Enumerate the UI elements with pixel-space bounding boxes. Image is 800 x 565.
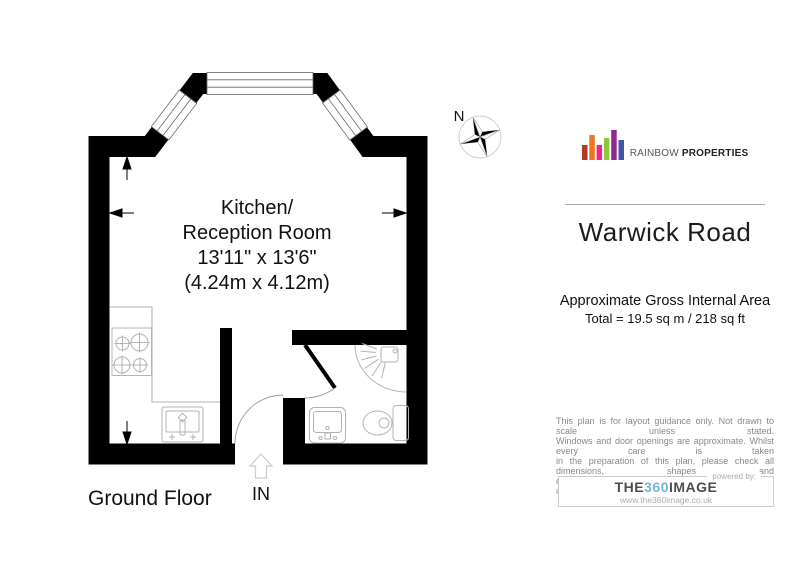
ground-floor-label: Ground Floor <box>88 487 212 510</box>
room-name-line2: Reception Room <box>183 222 332 244</box>
brand-name-bold: PROPERTIES <box>679 148 748 159</box>
logo-bar <box>618 140 624 160</box>
logo-bar <box>604 138 610 160</box>
provider-logo-360: 360 <box>644 479 669 495</box>
disclaimer-line: This plan is for layout guidance only. N… <box>556 416 774 436</box>
provider-url: www.the360image.co.uk <box>559 495 773 505</box>
bathroom-wall-stub <box>283 398 305 444</box>
logo-bar <box>596 145 602 160</box>
stove <box>112 328 152 376</box>
disclaimer-line: Windows and door openings are approximat… <box>556 436 774 456</box>
toilet <box>363 406 409 441</box>
logo-bar <box>611 130 617 160</box>
bathroom-sink <box>310 408 346 444</box>
provider-logo-image: IMAGE <box>669 479 717 495</box>
bathroom-door-arc <box>305 388 335 398</box>
brand-logo-bars <box>582 128 624 160</box>
compass-north-label: N <box>454 108 465 125</box>
floorplan-page: N Kitchen/ Reception Room 13'11" x 13'6"… <box>0 0 800 565</box>
provider-logo: THE360IMAGE <box>559 480 773 494</box>
kitchen-sink <box>162 407 203 442</box>
room-dimensions-metric: (4.24m x 4.12m) <box>184 272 330 294</box>
entrance-label: IN <box>252 484 270 504</box>
area-total: Total = 19.5 sq m / 218 sq ft <box>540 311 790 326</box>
panel-divider <box>565 204 765 205</box>
powered-by-box: powered by: THE360IMAGE www.the360image.… <box>558 476 774 507</box>
area-heading: Approximate Gross Internal Area <box>540 293 790 309</box>
logo-bar <box>589 135 595 160</box>
provider-logo-the: THE <box>615 479 645 495</box>
logo-bar <box>582 145 588 160</box>
property-title: Warwick Road <box>540 217 790 248</box>
powered-by-label: powered by: <box>707 472 761 481</box>
room-name-line1: Kitchen/ <box>221 197 294 219</box>
entry-door-arc <box>235 395 284 444</box>
shower <box>355 344 407 393</box>
brand-name: RAINBOW PROPERTIES <box>630 149 749 159</box>
bay-window-top <box>207 73 313 95</box>
interior-wall-kitchen <box>220 328 232 444</box>
brand-name-regular: RAINBOW <box>630 148 679 159</box>
entrance-arrow-icon <box>250 454 272 478</box>
brand-logo: RAINBOW PROPERTIES <box>540 122 790 160</box>
bathroom-wall-top <box>292 330 407 345</box>
room-dimensions-imperial: 13'11" x 13'6" <box>197 247 316 269</box>
bathroom-door-leaf <box>305 345 335 388</box>
